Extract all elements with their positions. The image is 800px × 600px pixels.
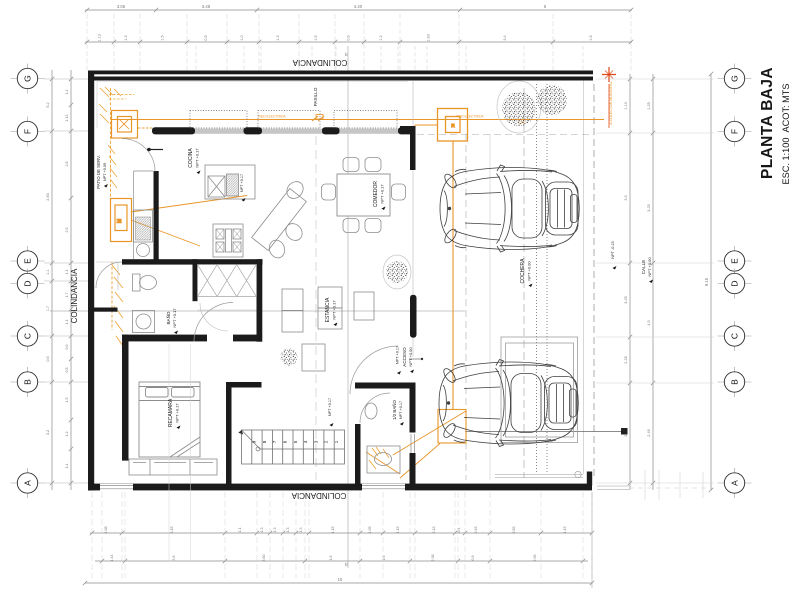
svg-text:NPT +0.17: NPT +0.17 — [195, 148, 200, 168]
svg-text:1.25: 1.25 — [647, 102, 651, 109]
svg-text:1.3: 1.3 — [124, 35, 128, 40]
svg-text:F: F — [730, 129, 740, 134]
svg-text:NPT +0.17: NPT +0.17 — [396, 346, 400, 364]
svg-text:COLINDANCIA: COLINDANCIA — [291, 491, 346, 500]
svg-text:1.93: 1.93 — [427, 34, 431, 41]
svg-text:2.26: 2.26 — [624, 356, 628, 363]
svg-text:b': b' — [345, 562, 349, 567]
svg-text:5.2: 5.2 — [46, 102, 50, 107]
svg-text:0.9: 0.9 — [204, 35, 208, 40]
svg-text:1.1: 1.1 — [65, 320, 69, 325]
svg-text:1.3: 1.3 — [260, 528, 264, 533]
svg-text:COCHERA: COCHERA — [520, 258, 526, 284]
svg-text:RED ELECTRICA: RED ELECTRICA — [258, 115, 286, 119]
svg-text:1: 1 — [334, 440, 339, 443]
svg-text:NPT +0.17: NPT +0.17 — [332, 300, 337, 320]
svg-text:3.48: 3.48 — [202, 4, 211, 9]
svg-text:3.6: 3.6 — [172, 556, 176, 561]
svg-text:1.7: 1.7 — [65, 293, 69, 298]
svg-text:D: D — [23, 280, 33, 286]
svg-text:RECAMARA: RECAMARA — [168, 398, 174, 427]
svg-text:1/2 BAÑO: 1/2 BAÑO — [392, 400, 397, 420]
svg-text:PATIO DE SERV.: PATIO DE SERV. — [96, 155, 101, 189]
svg-text:B: B — [23, 379, 33, 385]
svg-text:D: D — [730, 280, 740, 286]
svg-text:1.13: 1.13 — [624, 102, 628, 109]
svg-text:4.40: 4.40 — [354, 4, 363, 9]
svg-text:NPT +0.17: NPT +0.17 — [380, 184, 385, 204]
svg-text:NPT +0.09: NPT +0.09 — [103, 163, 107, 181]
svg-text:1.3: 1.3 — [286, 528, 290, 533]
svg-text:1.1: 1.1 — [238, 528, 242, 533]
svg-text:0.9: 0.9 — [347, 35, 351, 40]
svg-text:A COLECTOR MUNICIPAL: A COLECTOR MUNICIPAL — [609, 81, 613, 124]
svg-text:2.13: 2.13 — [432, 527, 436, 534]
svg-text:1.2: 1.2 — [379, 35, 383, 40]
svg-text:2.6: 2.6 — [65, 228, 69, 233]
svg-text:ESTANCIA: ESTANCIA — [325, 297, 331, 322]
svg-text:1.1: 1.1 — [65, 270, 69, 275]
svg-text:1.2: 1.2 — [65, 432, 69, 437]
svg-text:COLINDANCIA: COLINDANCIA — [292, 58, 347, 67]
svg-text:5: 5 — [293, 440, 298, 443]
svg-text:3.25: 3.25 — [647, 204, 651, 211]
svg-text:NPT +0.00: NPT +0.00 — [527, 261, 532, 281]
svg-text:NPT +0.17: NPT +0.17 — [240, 174, 244, 192]
svg-text:2.38: 2.38 — [431, 555, 435, 562]
svg-text:NPT +0.17: NPT +0.17 — [172, 308, 177, 328]
svg-text:B: B — [730, 379, 740, 385]
svg-text:1.15: 1.15 — [331, 527, 335, 534]
svg-text:1.5: 1.5 — [589, 35, 593, 40]
svg-text:3.15: 3.15 — [170, 527, 174, 534]
svg-text:ESC. 1:100 ACOT: MTS: ESC. 1:100 ACOT: MTS — [781, 83, 791, 184]
svg-text:0.6: 0.6 — [65, 345, 69, 350]
svg-text:0.8: 0.8 — [65, 368, 69, 373]
svg-text:PLANTA BAJA: PLANTA BAJA — [759, 67, 776, 179]
svg-text:C: C — [23, 333, 33, 339]
svg-text:2.93: 2.93 — [533, 555, 537, 562]
svg-text:NPT +0.17: NPT +0.17 — [175, 403, 180, 423]
svg-text:A: A — [730, 480, 740, 486]
svg-text:1.1: 1.1 — [46, 269, 50, 274]
svg-text:2.83: 2.83 — [46, 193, 50, 200]
svg-text:8: 8 — [262, 440, 267, 443]
svg-text:2.8: 2.8 — [65, 162, 69, 167]
svg-text:1.7: 1.7 — [46, 306, 50, 311]
svg-text:1.5: 1.5 — [65, 398, 69, 403]
svg-text:15: 15 — [338, 577, 343, 582]
svg-text:1.2: 1.2 — [65, 90, 69, 95]
svg-text:1.5: 1.5 — [161, 35, 165, 40]
svg-text:E: E — [23, 258, 33, 264]
svg-text:RED ELECTRICA: RED ELECTRICA — [456, 115, 484, 119]
svg-text:3.2: 3.2 — [46, 430, 50, 435]
svg-text:NPT -0.15: NPT -0.15 — [611, 241, 615, 258]
svg-text:C: C — [730, 333, 740, 339]
svg-text:1.45: 1.45 — [563, 527, 567, 534]
svg-text:G: G — [23, 75, 33, 82]
svg-text:9.15: 9.15 — [704, 277, 709, 286]
svg-text:F: F — [23, 129, 33, 134]
svg-text:ACCESO: ACCESO — [402, 347, 407, 367]
svg-text:1.15: 1.15 — [396, 527, 400, 534]
svg-text:1.5: 1.5 — [314, 35, 318, 40]
svg-text:2.49: 2.49 — [647, 429, 651, 436]
svg-text:PASILLO: PASILLO — [313, 87, 318, 106]
svg-text:1.13: 1.13 — [98, 34, 102, 41]
svg-text:COMEDOR: COMEDOR — [373, 181, 379, 208]
svg-text:1.08: 1.08 — [104, 527, 108, 534]
svg-text:3: 3 — [313, 440, 318, 443]
svg-text:1.09: 1.09 — [368, 527, 372, 534]
svg-text:A: A — [23, 480, 33, 486]
svg-text:2: 2 — [324, 440, 329, 443]
svg-text:3.4: 3.4 — [503, 35, 507, 40]
svg-text:NPT +0.00: NPT +0.00 — [408, 347, 413, 367]
svg-text:1.44: 1.44 — [110, 555, 114, 562]
svg-text:2.83: 2.83 — [512, 527, 516, 534]
svg-text:0.6: 0.6 — [46, 356, 50, 361]
svg-text:1.0: 1.0 — [240, 35, 244, 40]
svg-text:0.9: 0.9 — [471, 556, 475, 561]
svg-text:CALLE: CALLE — [641, 260, 646, 275]
svg-text:4.5: 4.5 — [647, 320, 651, 325]
svg-text:COLINDANCIA: COLINDANCIA — [70, 268, 79, 323]
svg-text:0.4: 0.4 — [457, 528, 461, 533]
svg-text:G: G — [730, 75, 740, 82]
svg-text:BAÑO: BAÑO — [165, 311, 171, 324]
svg-text:E: E — [730, 258, 740, 264]
svg-text:3.60: 3.60 — [262, 555, 266, 562]
svg-text:COCINA: COCINA — [188, 148, 194, 168]
svg-text:1.3: 1.3 — [273, 528, 277, 533]
svg-text:6: 6 — [283, 440, 288, 443]
svg-text:1.3: 1.3 — [276, 35, 280, 40]
svg-text:3.3: 3.3 — [624, 195, 628, 200]
svg-text:1.6: 1.6 — [382, 556, 386, 561]
svg-text:3.25: 3.25 — [624, 296, 628, 303]
svg-text:1.13: 1.13 — [65, 115, 69, 122]
svg-text:7: 7 — [272, 440, 277, 443]
svg-text:1.4: 1.4 — [65, 464, 69, 469]
svg-text:4: 4 — [303, 440, 308, 443]
svg-text:0.45: 0.45 — [474, 527, 478, 534]
svg-text:1.3: 1.3 — [299, 528, 303, 533]
svg-text:3.06: 3.06 — [117, 4, 126, 9]
svg-text:NPT +0.17: NPT +0.17 — [328, 398, 332, 416]
svg-text:M: M — [117, 219, 123, 223]
svg-text:1.6: 1.6 — [329, 556, 333, 561]
svg-text:NPT +0.00: NPT +0.00 — [647, 257, 652, 277]
svg-text:NPT +0.17: NPT +0.17 — [399, 401, 403, 419]
